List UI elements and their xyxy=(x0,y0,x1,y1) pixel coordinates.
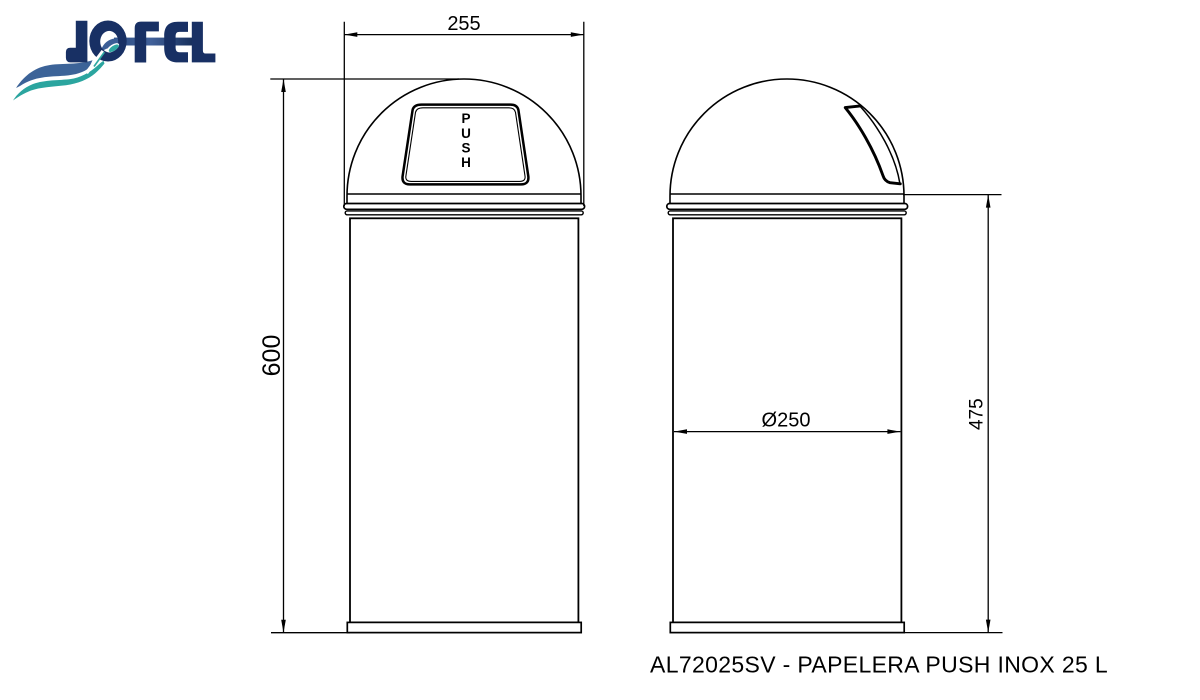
svg-text:600: 600 xyxy=(258,335,286,377)
svg-text:255: 255 xyxy=(447,13,480,35)
svg-text:H: H xyxy=(461,155,471,170)
svg-text:U: U xyxy=(461,126,471,141)
svg-text:P: P xyxy=(461,111,470,126)
svg-text:475: 475 xyxy=(966,398,987,430)
svg-text:Ø250: Ø250 xyxy=(762,410,811,432)
svg-text:AL72025SV - PAPELERA PUSH INOX: AL72025SV - PAPELERA PUSH INOX 25 L xyxy=(650,651,1108,677)
svg-text:S: S xyxy=(461,140,470,155)
